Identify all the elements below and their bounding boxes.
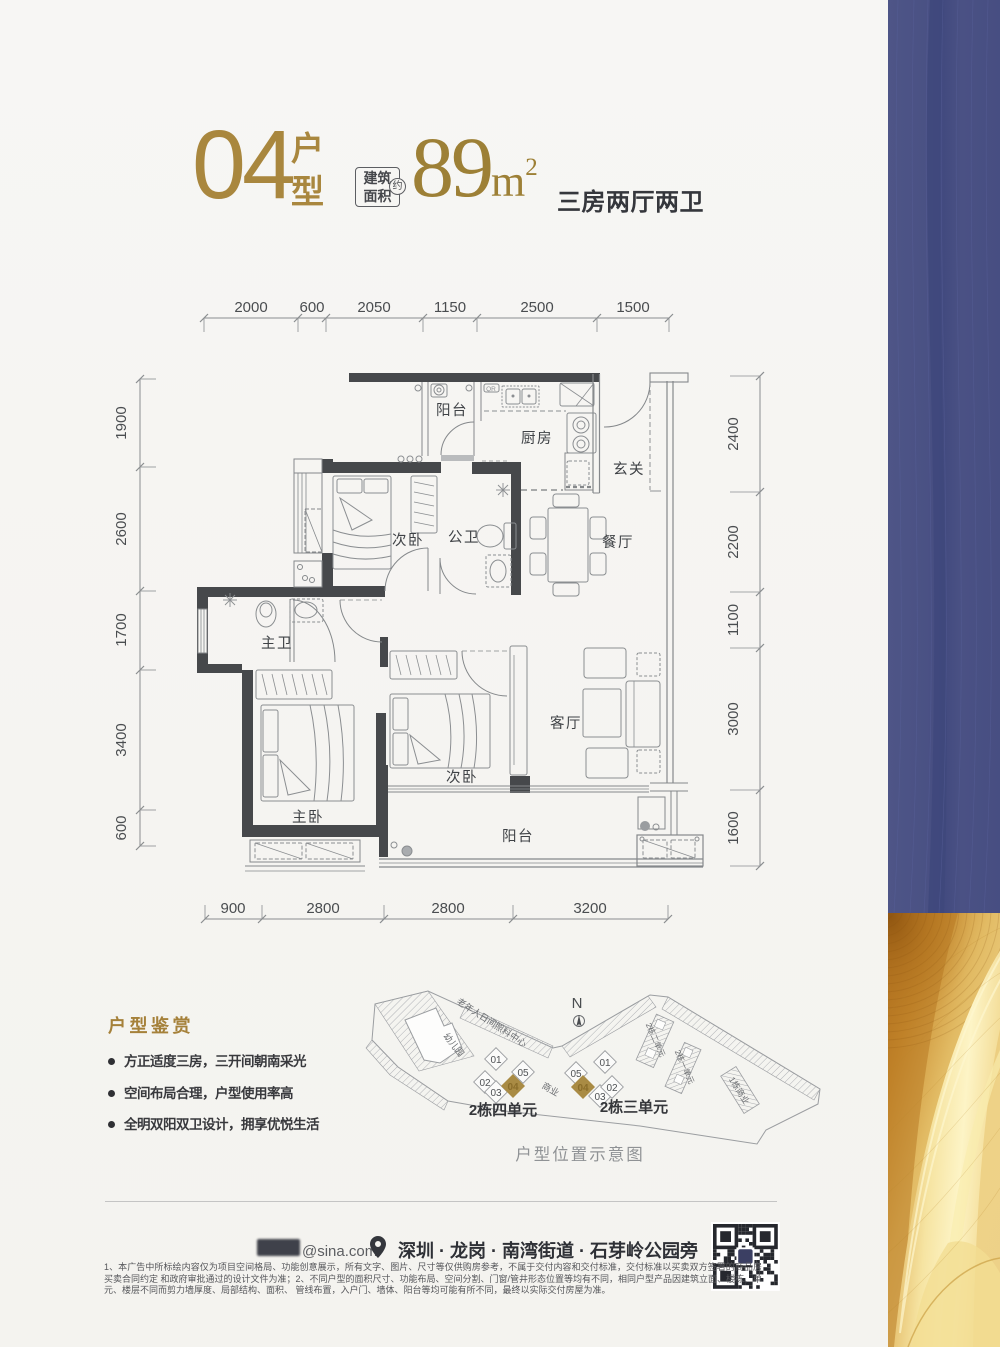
svg-text:05: 05: [517, 1068, 529, 1079]
svg-text:1150: 1150: [434, 299, 466, 316]
svg-text:2800: 2800: [306, 900, 339, 917]
svg-text:03: 03: [490, 1088, 502, 1099]
svg-text:1500: 1500: [616, 299, 649, 316]
svg-text:商业: 商业: [540, 1080, 561, 1099]
svg-text:3200: 3200: [573, 900, 606, 917]
svg-text:N: N: [572, 995, 583, 1012]
svg-text:01: 01: [599, 1058, 611, 1069]
svg-text:3000: 3000: [725, 702, 742, 735]
svg-text:04: 04: [577, 1083, 589, 1094]
svg-text:1600: 1600: [725, 811, 742, 844]
svg-text:主卧: 主卧: [292, 809, 324, 826]
svg-text:01: 01: [490, 1055, 502, 1066]
svg-text:厨房: 厨房: [521, 430, 553, 447]
svg-text:QR: QR: [486, 386, 496, 393]
svg-text:3400: 3400: [113, 723, 130, 756]
svg-text:2800: 2800: [431, 900, 464, 917]
svg-text:1700: 1700: [113, 613, 130, 646]
svg-text:1100: 1100: [725, 604, 742, 636]
svg-text:餐厅: 餐厅: [602, 534, 634, 551]
svg-text:2500: 2500: [520, 299, 553, 316]
svg-text:玄关: 玄关: [613, 461, 645, 478]
svg-text:600: 600: [299, 299, 324, 316]
svg-text:主卫: 主卫: [261, 635, 293, 652]
svg-text:客厅: 客厅: [550, 715, 582, 732]
svg-text:2栋三单元: 2栋三单元: [600, 1098, 668, 1116]
svg-text:900: 900: [220, 900, 245, 917]
svg-text:2栋四单元: 2栋四单元: [469, 1101, 537, 1119]
svg-text:户型位置示意图: 户型位置示意图: [515, 1145, 645, 1164]
svg-text:次卧: 次卧: [446, 769, 478, 786]
svg-text:阳台: 阳台: [502, 828, 534, 845]
svg-text:次卧: 次卧: [392, 532, 424, 549]
svg-text:阳台: 阳台: [436, 402, 468, 419]
svg-text:02: 02: [606, 1083, 618, 1094]
svg-text:2600: 2600: [113, 512, 130, 545]
svg-text:600: 600: [113, 815, 130, 840]
svg-text:1900: 1900: [113, 406, 130, 439]
svg-text:2000: 2000: [234, 299, 267, 316]
svg-text:04: 04: [507, 1082, 519, 1093]
svg-text:2400: 2400: [725, 417, 742, 450]
svg-text:老年人日间照料中心: 老年人日间照料中心: [455, 995, 529, 1048]
svg-text:2200: 2200: [725, 525, 742, 558]
svg-text:公卫: 公卫: [448, 530, 480, 546]
svg-text:2050: 2050: [357, 299, 390, 316]
